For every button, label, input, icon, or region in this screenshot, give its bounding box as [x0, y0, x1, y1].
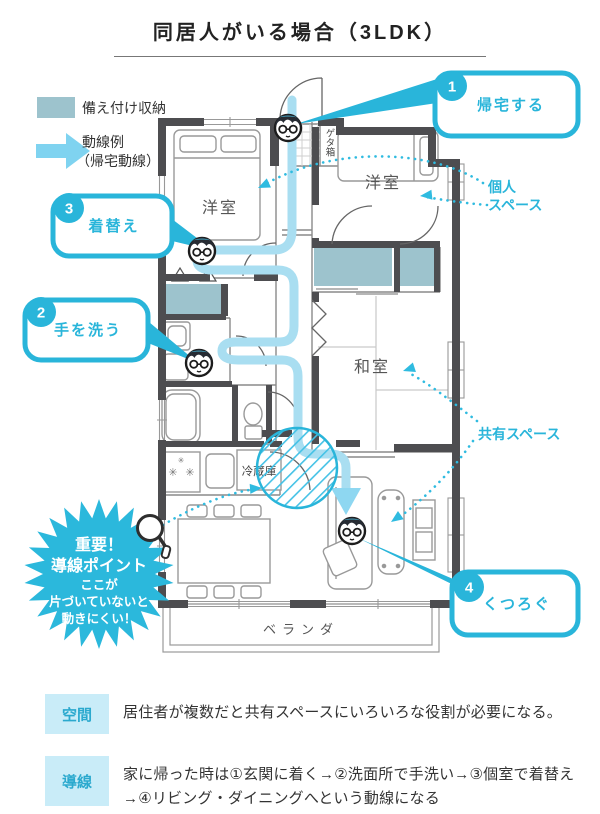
- svg-text:✳: ✳: [185, 467, 194, 479]
- personal-space-label-2: スペース: [488, 197, 542, 213]
- callout2-num: 2: [37, 305, 45, 322]
- starburst-line2: 導線ポイント: [51, 556, 147, 575]
- important-area-circle: [257, 428, 337, 508]
- starburst-line1: 重要！: [75, 535, 123, 554]
- callout1-num: 1: [448, 79, 456, 96]
- starburst-line4: 片づいていないと: [49, 594, 149, 609]
- note-flow: 導線 家に帰った時は①玄関に着く→②洗面所で手洗い→③個室で着替え→④リビング・…: [0, 756, 600, 811]
- entrance-door: [280, 78, 322, 118]
- title-underline: [114, 56, 486, 57]
- legend-storage-swatch: [37, 97, 75, 118]
- wash-basin: [164, 354, 188, 380]
- note-space: 空間 居住者が複数だと共有スペースにいろいろな役割が必要になる。: [0, 694, 600, 734]
- starburst-line5: 動きにくい！: [62, 611, 137, 626]
- bedroom-right-label: 洋室: [365, 174, 401, 192]
- note-space-tag: 空間: [45, 694, 109, 734]
- legend-storage-label: 備え付け収納: [82, 100, 166, 116]
- legend-flow-label-2: （帰宅動線）: [76, 153, 160, 169]
- low-table: [378, 490, 404, 574]
- note-flow-tag: 導線: [45, 756, 109, 806]
- svg-text:✳: ✳: [168, 467, 177, 479]
- callout1-label: 帰宅する: [477, 96, 545, 114]
- callout1-pointer: [296, 79, 437, 124]
- toilet: [244, 403, 262, 439]
- callout2-label: 手を洗う: [54, 321, 122, 339]
- legend-flow-label-1: 動線例: [82, 134, 124, 150]
- note-space-text: 居住者が複数だと共有スペースにいろいろな役割が必要になる。: [123, 694, 562, 725]
- note-flow-text: 家に帰った時は①玄関に着く→②洗面所で手洗い→③個室で着替え→④リビング・ダイニ…: [123, 756, 580, 811]
- notes-section: 空間 居住者が複数だと共有スペースにいろいろな役割が必要になる。 導線 家に帰っ…: [0, 694, 600, 811]
- callout3-num: 3: [65, 201, 73, 218]
- person-entrance: [275, 115, 301, 141]
- veranda-label: ベランダ: [263, 622, 339, 637]
- callout4-label: くつろぐ: [483, 596, 551, 613]
- svg-text:✳: ✳: [178, 456, 185, 465]
- kitchen-sink: [206, 454, 234, 488]
- bedroom-left-label: 洋室: [202, 199, 238, 217]
- person-changing: [189, 238, 215, 264]
- starburst-line3: ここが: [80, 577, 118, 592]
- page-title: 同居人がいる場合（3LDK）: [0, 16, 600, 45]
- callout3-label: 着替え: [87, 217, 139, 235]
- dining-table: [178, 519, 270, 583]
- person-relaxing: [339, 518, 365, 544]
- floor-plan-diagram: 備え付け収納 動線例 （帰宅動線） ベランダ ゲタ箱: [0, 0, 600, 690]
- page: 同居人がいる場合（3LDK） 備え付け収納 動線例 （帰宅動線）: [0, 0, 600, 814]
- japanese-room-label: 和室: [354, 358, 390, 376]
- shoe-box-label: ゲタ箱: [324, 128, 336, 157]
- callout4-num: 4: [465, 580, 474, 597]
- legend: 備え付け収納 動線例 （帰宅動線）: [36, 97, 166, 169]
- personal-space-label-1: 個人: [487, 179, 517, 195]
- space-labels: 個人 スペース 共有スペース: [478, 179, 560, 442]
- person-washing: [186, 350, 212, 376]
- shared-space-label: 共有スペース: [478, 426, 560, 442]
